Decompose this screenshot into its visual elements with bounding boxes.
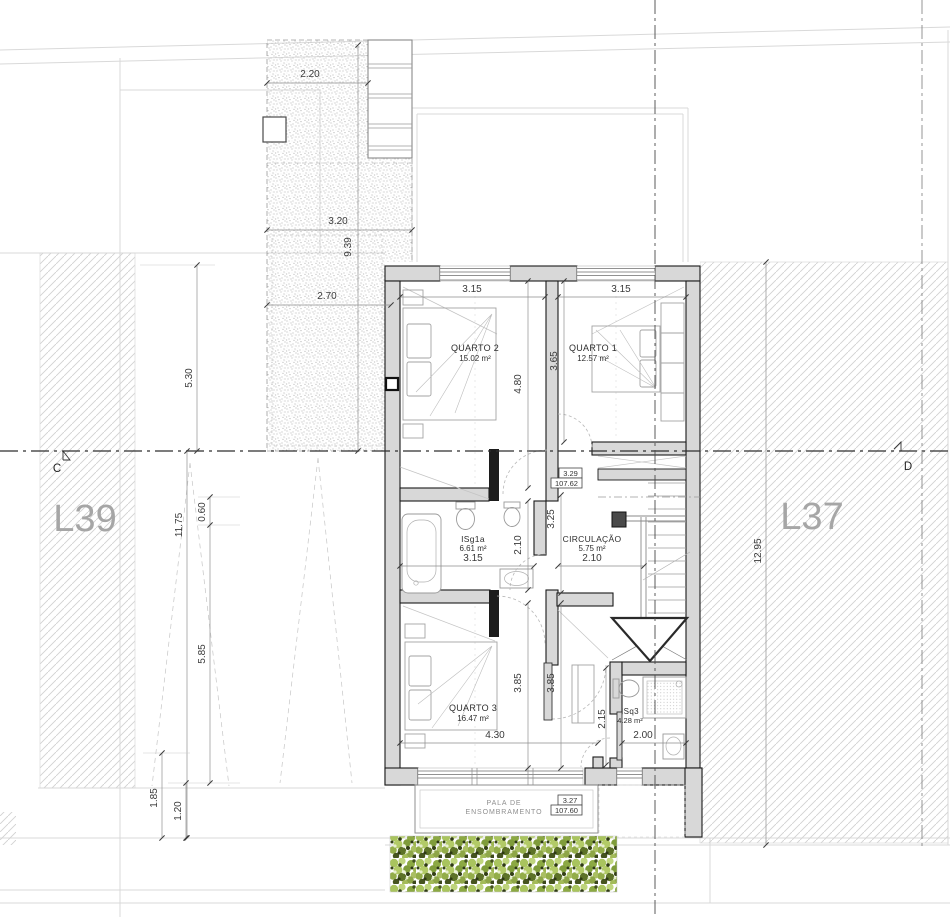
dim-left-upper: 5.30 (184, 368, 195, 388)
room-label-quarto3: QUARTO 3 (449, 703, 497, 713)
canopy-label-line2: ENSOMBRAMENTO (466, 809, 543, 816)
window-quarto1 (577, 266, 655, 281)
hedge (390, 836, 617, 892)
dim-quarto3-depth-b: 3.85 (546, 673, 557, 693)
room-label-isq3: ISq3 (621, 707, 639, 716)
wall-pier-top-right (655, 266, 700, 281)
terrace-ladder (368, 40, 412, 158)
wall-right-tail (685, 768, 702, 837)
room-label-isg1a: ISg1a (461, 534, 485, 544)
room-area-isg1a: 6.61 m² (459, 544, 486, 553)
level-1-value: 3.29 (563, 469, 578, 478)
wall-pier-bottom-left (385, 768, 418, 785)
wall-isq3-top (622, 662, 686, 675)
wall-q2-q1 (546, 281, 558, 501)
wall-pier-entry-stub (593, 757, 603, 768)
dim-left-offset: 0.60 (197, 502, 208, 522)
floor-plan-page: 2.20 3.20 9.39 2.70 5.30 11.75 0.60 5.85… (0, 0, 950, 917)
dim-terrace-top: 2.20 (300, 69, 320, 80)
dim-bath3-width: 2.00 (633, 730, 653, 741)
room-area-circulacao: 5.75 m² (578, 544, 605, 553)
stub-passage (489, 449, 499, 501)
dim-terrace-mid: 3.20 (328, 216, 348, 227)
room-area-quarto2: 15.02 m² (459, 354, 491, 363)
room-area-quarto1: 12.57 m² (577, 354, 609, 363)
dim-bath3-depth: 2.15 (597, 709, 608, 729)
room-label-quarto1: QUARTO 1 (569, 343, 617, 353)
wall-pier-entry (585, 768, 617, 785)
dim-quarto1-width: 3.15 (611, 284, 631, 295)
dim-left-lower: 5.85 (197, 644, 208, 664)
shower-isq3 (643, 677, 686, 718)
lot-left-hatch (0, 253, 135, 845)
dim-circ-width: 2.10 (582, 553, 602, 564)
level-2-value: 3.27 (563, 796, 578, 805)
floor-plan-drawing: 2.20 3.20 9.39 2.70 5.30 11.75 0.60 5.85… (0, 0, 950, 917)
room-area-quarto3: 16.47 m² (457, 714, 489, 723)
window-quarto3 (418, 768, 583, 785)
stub-q3-door (489, 590, 499, 637)
wall-left (385, 281, 400, 785)
dim-terrace-length: 9.39 (343, 237, 354, 257)
room-area-isq3: 4.28 m² (617, 716, 643, 725)
room-label-circulacao: CIRCULAÇÃO (563, 534, 622, 544)
driveway-guides (152, 458, 352, 786)
window-quarto2 (440, 266, 510, 281)
porch-outline (599, 785, 685, 837)
shading-canopy (415, 785, 685, 837)
lot-label-left: L39 (53, 498, 116, 540)
wall-marker-box (386, 378, 398, 390)
dim-terrace-lower: 2.70 (317, 291, 337, 302)
level-1-elevation: 107.62 (555, 479, 578, 488)
wall-closet-back (598, 469, 686, 480)
dim-bath1-width: 3.15 (463, 553, 483, 564)
section-label-d: D (904, 461, 912, 473)
wall-circ-bottom (557, 593, 613, 606)
stair-post (612, 512, 626, 527)
dim-left-bottom-b: 1.20 (173, 801, 184, 821)
dim-circ-depth: 3.25 (546, 509, 557, 529)
dim-quarto3-width: 4.30 (485, 730, 505, 741)
wall-pier-top-left (385, 266, 440, 281)
terrace-box (263, 117, 286, 142)
dim-quarto3-depth-a: 3.85 (513, 673, 524, 693)
wall-bath1-right (534, 501, 546, 555)
dim-left-bottom-a: 1.85 (149, 788, 160, 808)
room-label-quarto2: QUARTO 2 (451, 343, 499, 353)
building (385, 262, 702, 837)
dim-right-total: 12.95 (753, 538, 764, 563)
bathtub-isg1a (402, 514, 441, 593)
wall-pier-top-mid (510, 266, 577, 281)
wall-q1-bottom (592, 442, 686, 455)
section-label-c: C (53, 463, 61, 475)
dim-quarto2-depth: 4.80 (513, 374, 524, 394)
canopy-label-line1: PALA DE (487, 800, 522, 807)
wall-right (686, 281, 700, 768)
level-2-elevation: 107.60 (555, 806, 578, 815)
window-isq3 (617, 768, 642, 785)
dim-quarto1-depth: 3.65 (549, 351, 560, 371)
dim-bath1-depth: 2.10 (513, 535, 524, 555)
wall-circ-q3 (546, 590, 558, 665)
lot-label-right: L37 (780, 496, 843, 538)
dim-quarto2-width: 3.15 (462, 284, 482, 295)
dim-left-total: 11.75 (174, 512, 185, 537)
lot-right-hatch (700, 262, 948, 843)
